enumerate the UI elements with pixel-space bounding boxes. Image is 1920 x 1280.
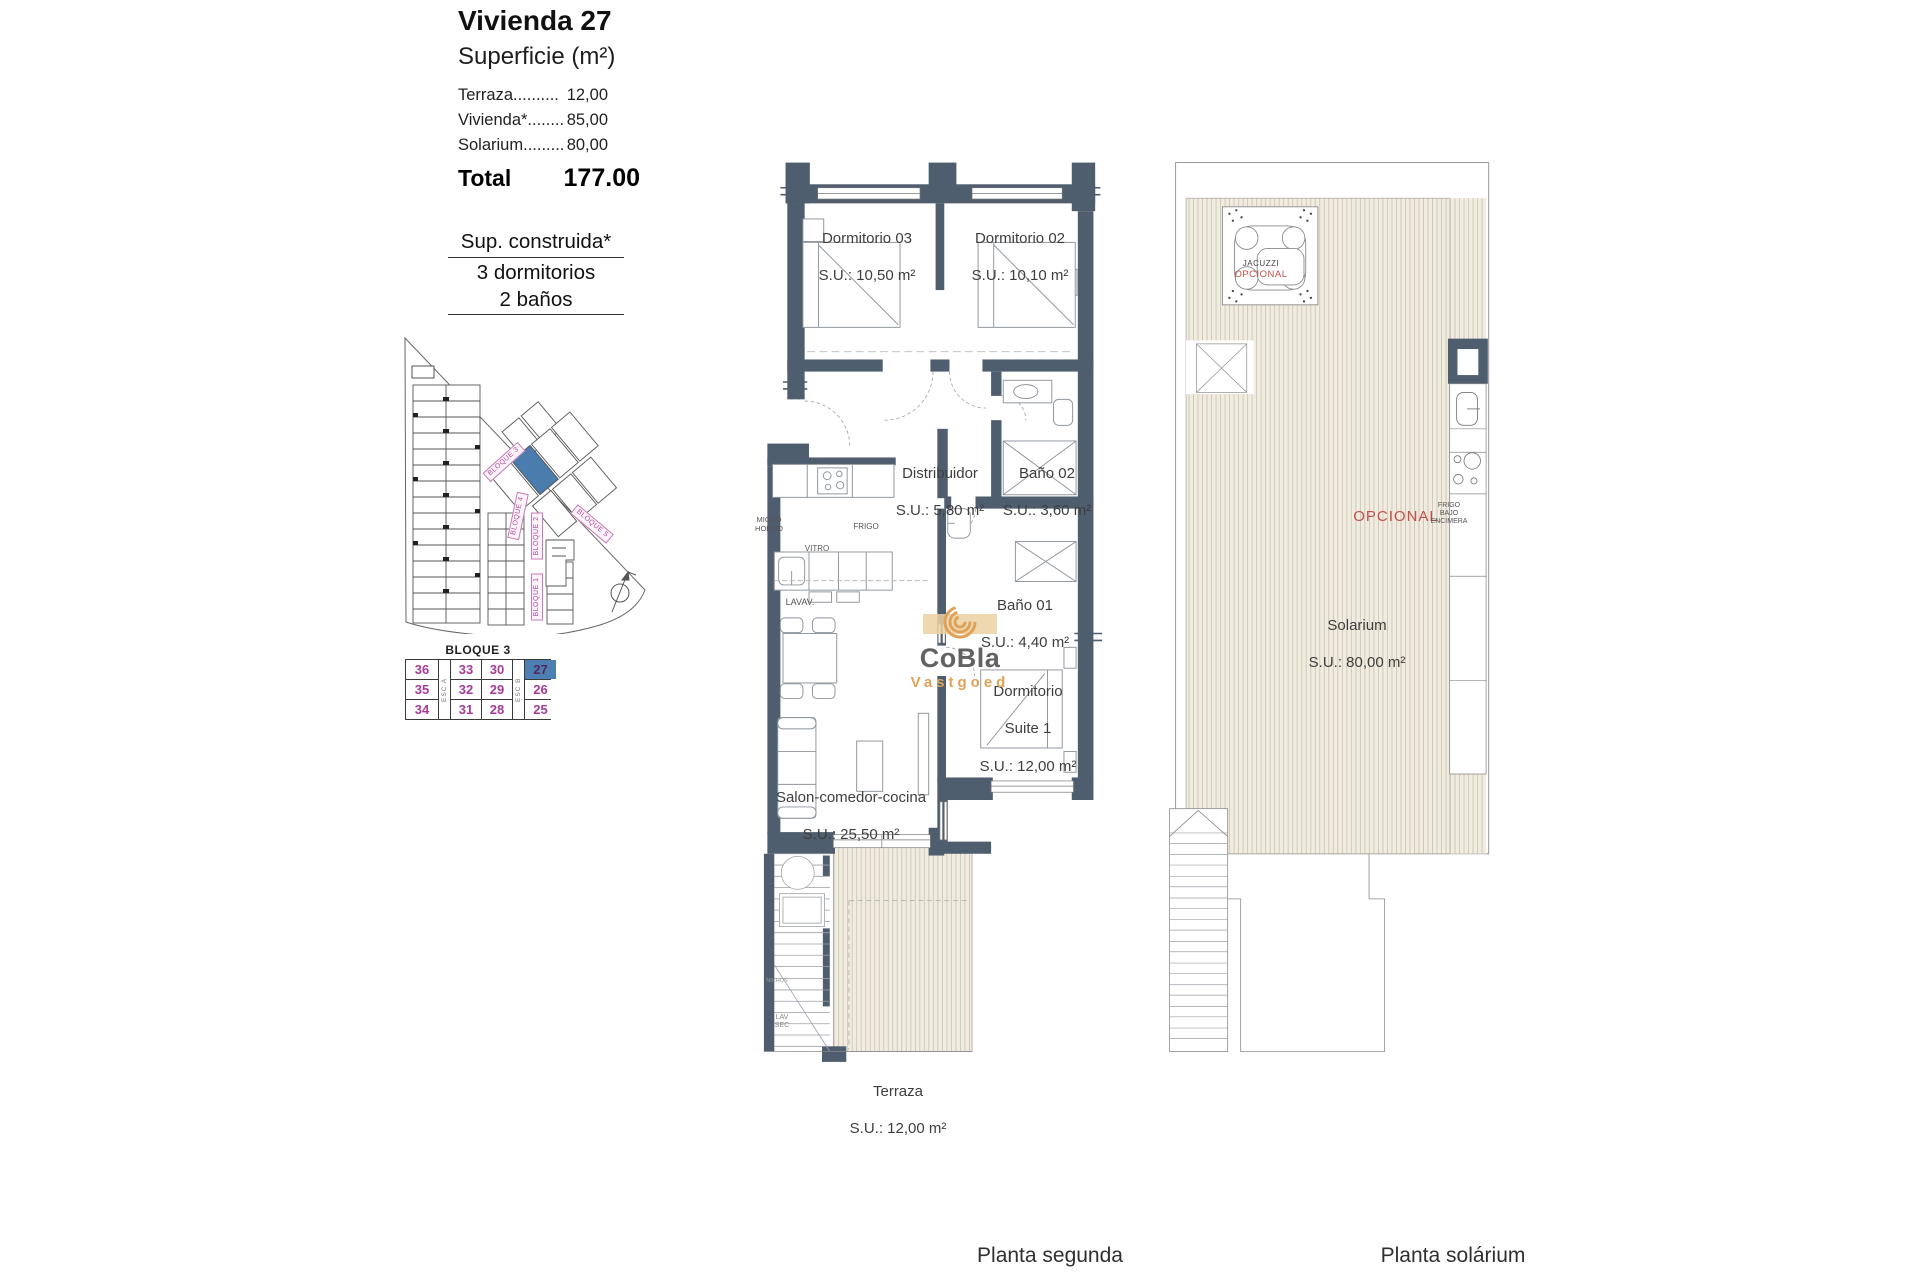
surface-total-row: Total 177.00 (458, 164, 640, 193)
label-jacuzzi-opcional: OPCIONAL (1234, 270, 1287, 281)
bloque3-table-title: BLOQUE 3 (405, 643, 551, 657)
surface-row-value: 80,00 (567, 133, 608, 158)
label-lavav: LAVAV. (786, 597, 815, 607)
surface-row: Solarium......... 80,00 (458, 133, 608, 158)
watermark-title: CoBla (875, 645, 1045, 672)
kitchen-counter (773, 464, 894, 497)
watermark-subtitle: Vastgoed (875, 674, 1045, 691)
unit-cell: 26 (525, 680, 556, 699)
site-small-building (412, 366, 434, 378)
room-label-solarium: Solarium S.U.: 80,00 m² (1309, 598, 1406, 692)
label-frigo-bajo-encimera: FRIGO BAJO ENCIMERA (1431, 502, 1468, 526)
terrace-deck (833, 843, 972, 1051)
laundry-box (780, 894, 825, 927)
watermark-logo-icon (934, 604, 986, 640)
unit-cell: 28 (482, 700, 512, 719)
watermark: CoBla Vastgoed (875, 604, 1045, 691)
room-label-bano02: Baño 02 S.U.: 3,60 m² (1003, 446, 1091, 540)
bathrooms-count: 2 baños (448, 285, 624, 312)
compass-icon (611, 572, 636, 612)
caption-planta-solarium: Planta solárium (1381, 1244, 1526, 1268)
surface-row-value: 85,00 (567, 108, 608, 133)
label-opcional: OPCIONAL (1353, 508, 1439, 525)
site-label-bloque2: BLOQUE 2 (531, 512, 543, 559)
bloque3-table-grid: 36 ESC A 33 30 ESC B 27 35 32 29 26 34 3… (405, 659, 551, 720)
bedrooms-count: 3 dormitorios (448, 258, 624, 285)
solarium-stairs (1170, 809, 1228, 1052)
skylight-box (1196, 344, 1246, 393)
site-plan (398, 332, 646, 634)
surface-row: Vivienda*........ 85,00 (458, 108, 608, 133)
dining-set (780, 618, 836, 699)
room-label-distribuidor: Distribuidor S.U.: 5,80 m² (896, 446, 984, 540)
outdoor-kitchen (1448, 339, 1488, 774)
unit-cell: 33 (451, 660, 481, 679)
surface-row-label: Terraza.......... (458, 83, 559, 108)
unit-cell: 30 (482, 660, 512, 679)
label-stair-circle: NICHOS (766, 978, 787, 984)
room-label-dorm02: Dormitorio 02 S.U.: 10,10 m² (972, 211, 1069, 305)
stair-core-b-label: ESC B (513, 660, 524, 719)
label-vitro: VITRO (805, 544, 829, 553)
built-surface-block: Sup. construida* 3 dormitorios 2 baños (448, 230, 624, 315)
unit-cell: 34 (406, 700, 438, 719)
room-label-terraza: Terraza S.U.: 12,00 m² (850, 1064, 947, 1158)
surface-panel: Vivienda 27 Superficie (m²) Terraza.....… (458, 6, 658, 193)
label-micro-horno: MICRO HORNO (755, 516, 783, 533)
built-surface-title: Sup. construida* (448, 230, 624, 258)
rowhouse-strip-west (413, 385, 480, 623)
unit-cell: 32 (451, 680, 481, 699)
surface-row-label: Vivienda*........ (458, 108, 564, 133)
label-frigo: FRIGO (853, 522, 878, 531)
total-label: Total (458, 165, 511, 192)
unit-cell: 29 (482, 680, 512, 699)
unit-cell: 25 (525, 700, 556, 719)
surface-subtitle: Superficie (m²) (458, 43, 658, 71)
unit-cell: 31 (451, 700, 481, 719)
solarium-deck-top-right (1450, 198, 1486, 340)
surface-row-value: 12,00 (567, 83, 608, 108)
label-jacuzzi: JACUZZI (1243, 259, 1279, 268)
solarium-deck-bottom-right (1450, 774, 1486, 854)
page-title: Vivienda 27 (458, 6, 658, 37)
surface-row: Terraza.......... 12,00 (458, 83, 608, 108)
sink-counter (774, 552, 930, 602)
total-value: 177.00 (564, 164, 640, 193)
surface-row-label: Solarium......... (458, 133, 564, 158)
caption-planta-segunda: Planta segunda (977, 1244, 1123, 1268)
unit-cell: 35 (406, 680, 438, 699)
unit-cell-highlighted: 27 (525, 660, 556, 679)
room-label-salon: Salon-comedor-cocina S.U.: 25,50 m² (776, 770, 926, 864)
floorplan-sheet: Vivienda 27 Superficie (m²) Terraza.....… (0, 0, 1920, 1280)
jacuzzi (1222, 207, 1317, 305)
bloque3-unit-table: BLOQUE 3 36 ESC A 33 30 ESC B 27 35 32 2… (405, 643, 551, 720)
room-label-dorm03: Dormitorio 03 S.U.: 10,50 m² (819, 211, 916, 305)
unit-cell: 36 (406, 660, 438, 679)
patio-outline (1228, 854, 1385, 1052)
site-label-bloque1: BLOQUE 1 (531, 573, 543, 620)
label-lav-sec: LAV SEC (775, 1014, 789, 1030)
stair-core-a-label: ESC A (439, 660, 450, 719)
